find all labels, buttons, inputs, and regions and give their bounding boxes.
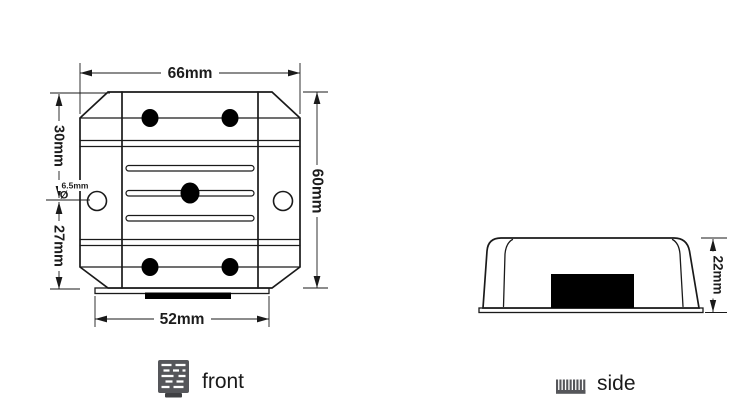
front-view (80, 92, 300, 299)
arrowhead (314, 92, 321, 104)
side-view-icon (556, 380, 586, 394)
dim-front-bottom-width: 52mm (95, 296, 269, 328)
screw-dot-center (181, 183, 200, 204)
legend-side: side (556, 372, 636, 395)
mounting-hole-right (274, 192, 293, 211)
arrowhead (56, 202, 63, 214)
arrowhead (314, 276, 321, 288)
dimension-drawing-canvas: 66mm 60mm 30mm 27mm (0, 0, 750, 419)
arrowhead (80, 70, 92, 77)
dim-label-66mm: 66mm (168, 65, 213, 82)
side-connector-block (551, 274, 634, 308)
arrowhead (710, 239, 716, 251)
side-view (479, 238, 703, 313)
front-slot (126, 166, 254, 172)
dim-label-22mm: 22mm (711, 255, 726, 294)
legend-front: front (158, 360, 244, 398)
front-slot (126, 216, 254, 222)
screw-dot (222, 258, 239, 276)
front-connector-bar (145, 293, 231, 300)
arrowhead (288, 70, 300, 77)
dim-label-27mm: 27mm (51, 225, 67, 267)
dim-front-height: 60mm (303, 92, 328, 288)
arrowhead (710, 300, 716, 312)
front-view-icon (158, 360, 189, 398)
arrowhead (56, 94, 63, 106)
front-view-label: front (202, 370, 244, 393)
arrowhead (56, 277, 63, 289)
screw-dot (222, 109, 239, 127)
screw-dot (142, 109, 159, 127)
dim-front-lower: 27mm (50, 202, 81, 289)
dim-side-height: 22mm (701, 238, 727, 313)
screw-dot (142, 258, 159, 276)
mounting-hole-left (88, 192, 107, 211)
dim-label-60mm: 60mm (309, 169, 326, 214)
diameter-symbol: Ø (60, 190, 69, 202)
arrowhead (257, 316, 269, 323)
arrowhead (95, 316, 107, 323)
side-view-label: side (597, 372, 636, 395)
dim-label-52mm: 52mm (160, 311, 205, 328)
dim-label-30mm: 30mm (51, 125, 67, 167)
